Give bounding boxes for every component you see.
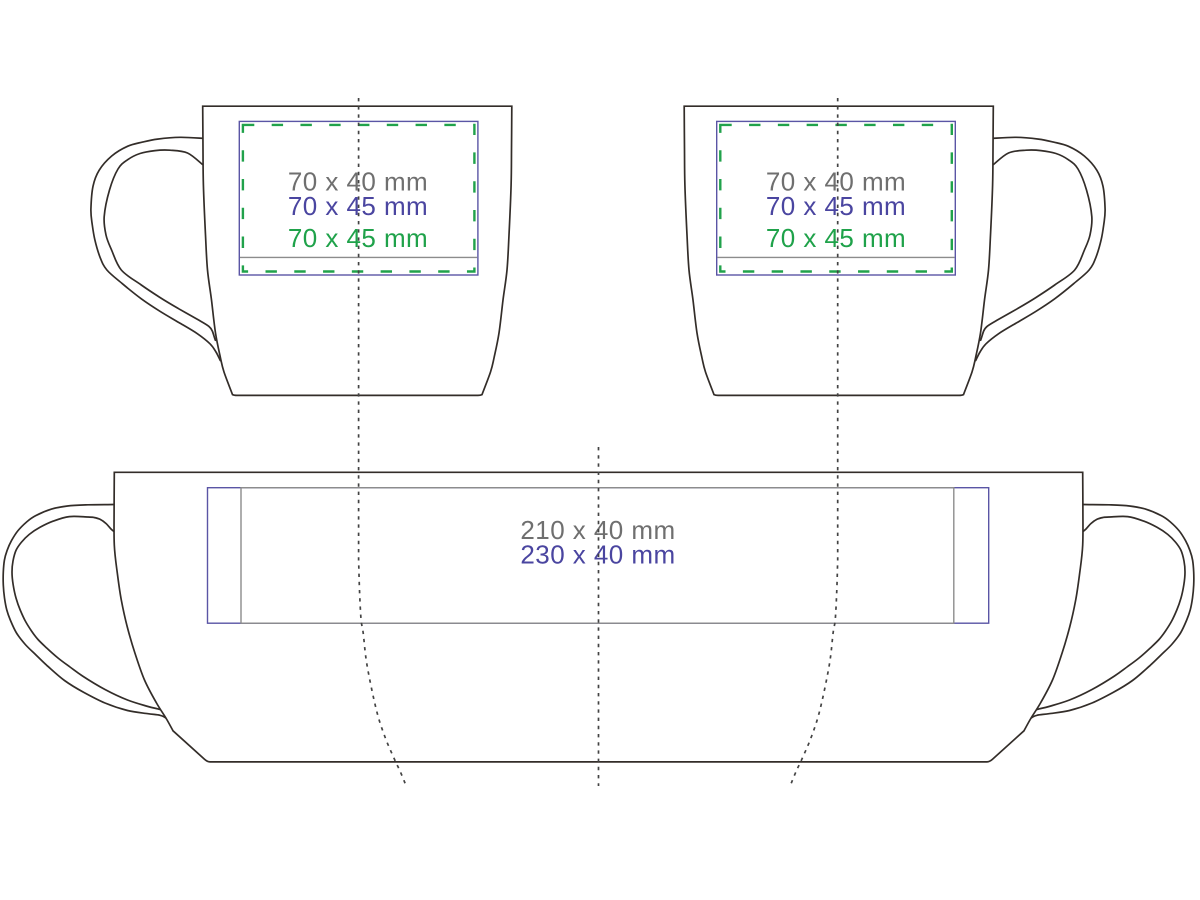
svg-text:70 x 45 mm: 70 x 45 mm [766, 223, 906, 253]
svg-text:70 x 45 mm: 70 x 45 mm [766, 191, 906, 221]
